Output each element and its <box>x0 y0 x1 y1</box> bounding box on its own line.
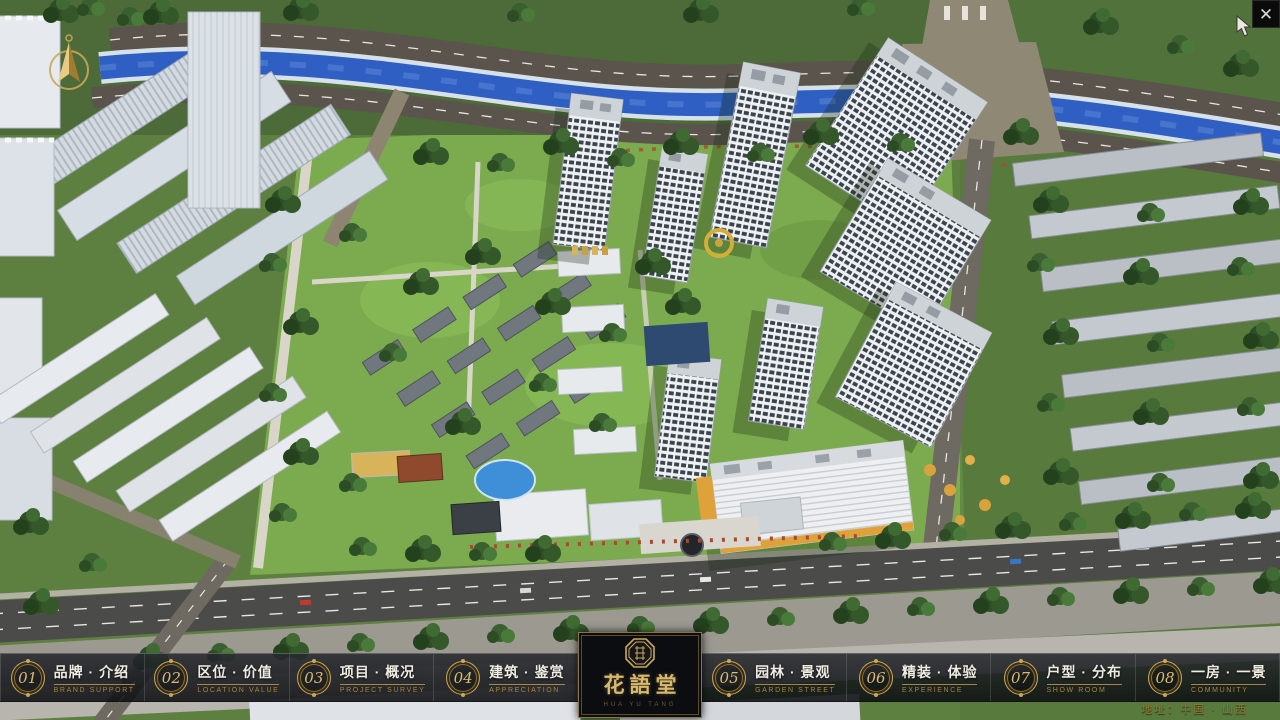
project-logo[interactable]: 花語堂 HUA YU TANG <box>578 632 702 718</box>
compass-north-icon <box>38 26 100 104</box>
nav-item-badge: 05 <box>712 661 746 695</box>
nav-item-label: 品牌 · 介绍 <box>54 662 129 682</box>
nav-item-label: 建筑 · 鉴赏 <box>489 662 564 682</box>
nav-item-label: 区位 · 价值 <box>197 662 272 682</box>
nav-item-label: 一房 · 一景 <box>1191 662 1266 682</box>
nav-item-architecture[interactable]: 04 建筑 · 鉴赏 APPRECIATION <box>434 654 578 701</box>
nav-item-interior[interactable]: 06 精装 · 体验 EXPERIENCE <box>847 654 992 701</box>
nav-item-sublabel: COMMUNITY <box>1191 684 1266 694</box>
nav-item-badge: 03 <box>297 661 331 695</box>
masterplan-viewport[interactable] <box>0 0 1280 720</box>
logo-name: 花語堂 <box>599 669 682 699</box>
nav-item-label: 园林 · 景观 <box>755 662 830 682</box>
nav-item-floorplans[interactable]: 07 户型 · 分布 SHOW ROOM <box>991 654 1136 701</box>
nav-item-label: 精装 · 体验 <box>902 662 977 682</box>
nav-item-badge: 06 <box>859 661 893 695</box>
nav-item-label: 户型 · 分布 <box>1047 662 1122 682</box>
nav-item-community[interactable]: 08 一房 · 一景 COMMUNITY <box>1136 654 1280 701</box>
nav-item-badge: 02 <box>154 661 188 695</box>
nav-item-sublabel: BRAND SUPPORT <box>54 684 135 694</box>
nav-item-sublabel: PROJECT SURVEY <box>340 684 426 694</box>
nav-item-sublabel: APPRECIATION <box>489 684 564 694</box>
logo-seal-icon <box>625 638 655 668</box>
nav-item-sublabel: GARDEN STREET <box>755 684 835 694</box>
close-icon: ✕ <box>1259 5 1273 24</box>
nav-item-sublabel: LOCATION VALUE <box>197 684 279 694</box>
nav-item-sublabel: EXPERIENCE <box>902 684 977 694</box>
project-address: 地址：中国 · 山西 <box>1141 701 1248 717</box>
nav-item-badge: 04 <box>446 661 480 695</box>
nav-item-badge: 01 <box>11 661 45 695</box>
logo-subtext: HUA YU TANG <box>603 702 676 708</box>
nav-item-label: 项目 · 概况 <box>340 662 415 682</box>
nav-item-badge: 07 <box>1004 661 1038 695</box>
app-window: ✕ 01 品牌 · 介绍 BRAND SUPPORT 02 区位 · 价值 LO… <box>0 0 1280 720</box>
nav-item-brand[interactable]: 01 品牌 · 介绍 BRAND SUPPORT <box>0 654 145 701</box>
nav-item-badge: 08 <box>1148 661 1182 695</box>
nav-item-sublabel: SHOW ROOM <box>1047 684 1122 694</box>
close-button[interactable]: ✕ <box>1252 0 1280 28</box>
nav-item-project[interactable]: 03 项目 · 概况 PROJECT SURVEY <box>290 654 434 701</box>
mouse-pointer-icon <box>1236 15 1254 39</box>
nav-item-location[interactable]: 02 区位 · 价值 LOCATION VALUE <box>145 654 289 701</box>
nav-item-garden[interactable]: 05 园林 · 景观 GARDEN STREET <box>702 654 847 701</box>
